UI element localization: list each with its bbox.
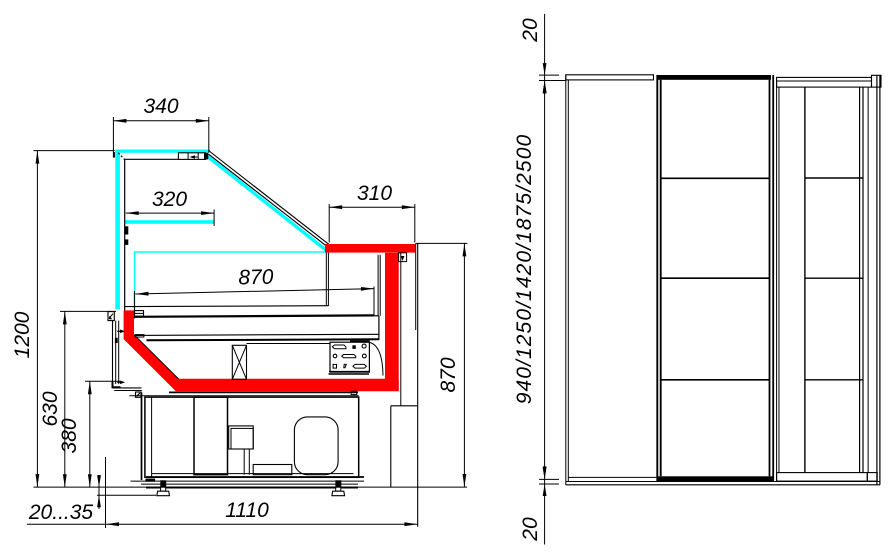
svg-text:940/1250/1420/1875/2500: 940/1250/1420/1875/2500 xyxy=(513,134,536,405)
svg-text:1200: 1200 xyxy=(11,311,34,358)
svg-text:870: 870 xyxy=(437,357,460,392)
svg-text:20...35: 20...35 xyxy=(28,501,94,524)
svg-text:340: 340 xyxy=(143,95,178,118)
svg-text:320: 320 xyxy=(152,188,187,211)
svg-text:380: 380 xyxy=(58,418,81,453)
svg-text:1110: 1110 xyxy=(225,499,269,522)
svg-text:20: 20 xyxy=(519,18,542,43)
svg-text:20: 20 xyxy=(519,517,542,542)
svg-text:870: 870 xyxy=(238,266,274,290)
svg-text:310: 310 xyxy=(357,182,392,205)
